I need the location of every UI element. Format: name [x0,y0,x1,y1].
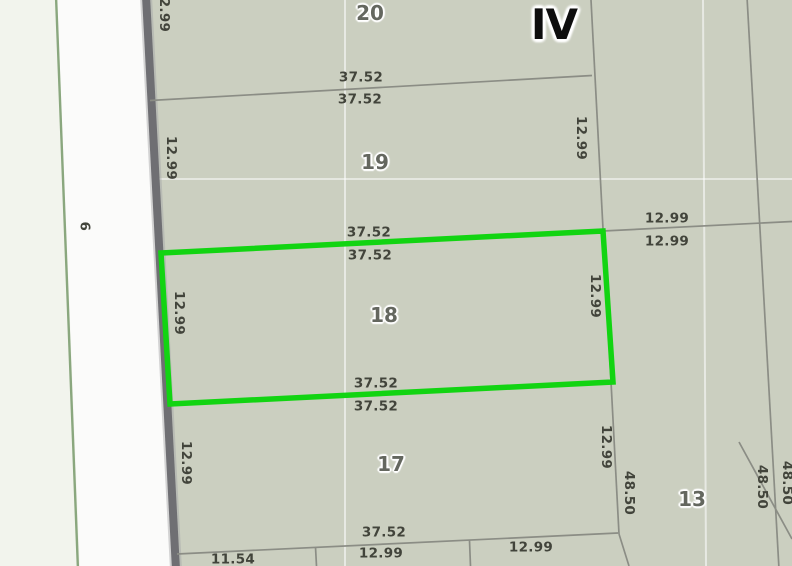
map-canvas [0,0,792,566]
bottom-row-divider-2 [470,541,471,566]
cadastral-map-viewport[interactable]: 2.9937.5237.5212.9912.9912.9912.9937.523… [0,0,792,566]
parcel-block-area[interactable] [145,0,792,566]
bottom-row-divider-1 [316,547,317,566]
